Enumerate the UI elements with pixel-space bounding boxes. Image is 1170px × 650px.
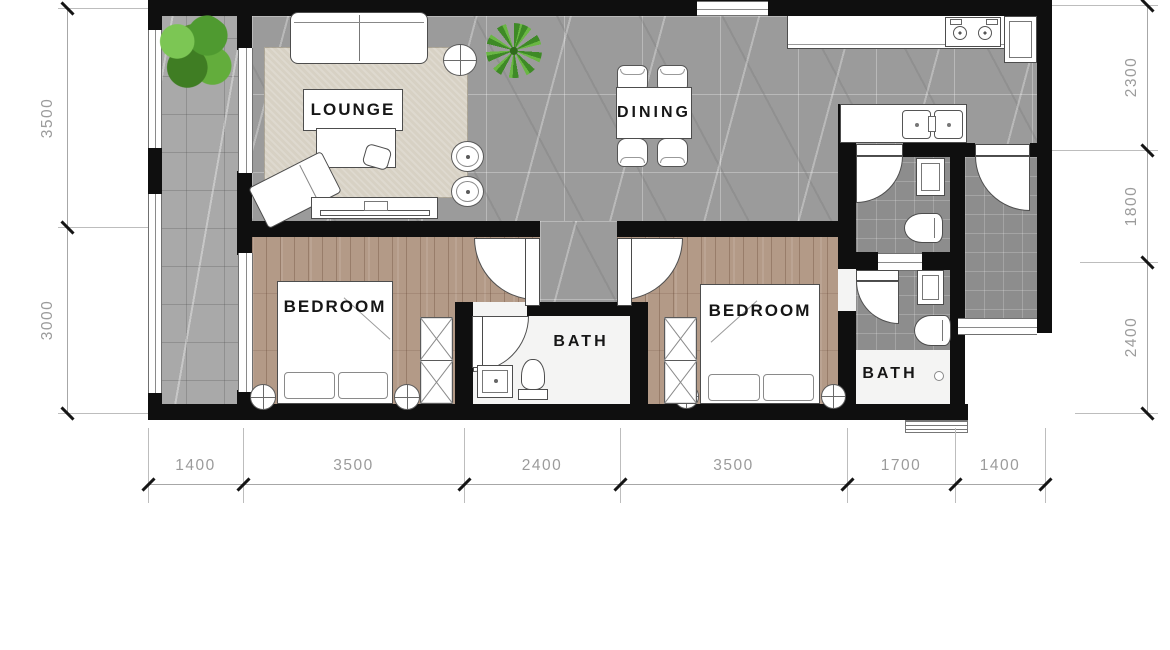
bath-lower-cabinet-inner bbox=[922, 275, 939, 300]
dimension-bottom-4: 3500 bbox=[620, 456, 847, 476]
dimension-right-1: 2300 bbox=[1122, 47, 1142, 107]
sofa-back bbox=[294, 13, 424, 23]
room-label-bedroom2: BEDROOM bbox=[709, 301, 812, 321]
window-bedroom1-balcony bbox=[238, 253, 253, 392]
rug-mat-icon-1a bbox=[250, 384, 276, 410]
dimension-right-3: 2400 bbox=[1122, 307, 1142, 367]
wardrobe-icon-2 bbox=[664, 317, 697, 404]
wall-balcony-a bbox=[237, 0, 252, 50]
door-leaf-bedroom1 bbox=[525, 238, 540, 306]
room-label-bath-right-box: BATH bbox=[858, 363, 922, 385]
door-handle-dot bbox=[934, 371, 944, 381]
fridge-icon bbox=[1004, 16, 1037, 63]
rug-mat-icon-1b bbox=[394, 384, 420, 410]
wall-bedrooms-b bbox=[617, 221, 845, 237]
door-leaf-entry bbox=[975, 144, 1030, 156]
stove-knob-2 bbox=[986, 19, 998, 25]
door-leaf-bath-upper bbox=[856, 144, 903, 156]
toilet-tank-lower bbox=[942, 320, 948, 341]
wall-corridor-top-b bbox=[1030, 143, 1037, 157]
stove-knob-1 bbox=[950, 19, 962, 25]
dimension-bottom-1: 1400 bbox=[148, 456, 243, 476]
dining-chair-3 bbox=[617, 138, 648, 167]
stool-icon-2 bbox=[451, 176, 484, 207]
tv-box bbox=[364, 201, 388, 211]
dimension-line-right bbox=[1147, 5, 1148, 413]
toilet-icon-upper bbox=[904, 213, 943, 243]
ext-l2 bbox=[58, 227, 148, 228]
toilet-icon-middle-tank bbox=[518, 389, 548, 400]
toilet-icon-middle-bowl bbox=[521, 359, 545, 390]
wall-bathcol-top bbox=[903, 143, 950, 157]
door-gap-bath-lower bbox=[838, 269, 856, 311]
chaise-line bbox=[299, 165, 318, 201]
window-balcony-left-lower bbox=[148, 194, 162, 393]
wardrobe-icon-1 bbox=[420, 317, 453, 404]
kitchen-island bbox=[840, 104, 967, 143]
wall-bedrooms-a bbox=[252, 221, 540, 237]
stool-icon-1 bbox=[451, 141, 484, 172]
door-leaf-bedroom2 bbox=[617, 238, 632, 306]
wall-balcony-b bbox=[237, 171, 252, 255]
dimension-bottom-5: 1700 bbox=[847, 456, 955, 476]
toilet-icon-lower bbox=[914, 315, 951, 346]
window-kitchen-top bbox=[697, 1, 768, 16]
dimension-line-left bbox=[67, 8, 68, 413]
dimension-left-1: 3500 bbox=[38, 88, 58, 148]
dimension-bottom-6: 1400 bbox=[955, 456, 1045, 476]
toilet-tank-upper bbox=[934, 218, 940, 238]
dimension-bottom-2: 3500 bbox=[243, 456, 464, 476]
dimension-line-bottom bbox=[148, 484, 1045, 485]
room-label-lounge: LOUNGE bbox=[311, 100, 396, 120]
bed2-pillow-1 bbox=[708, 374, 760, 401]
ext-r2 bbox=[1052, 150, 1158, 151]
wall-corridor-west bbox=[950, 143, 965, 420]
wall-mbath-west bbox=[455, 302, 473, 404]
tv-console-icon bbox=[311, 197, 438, 219]
bath-upper-cabinet bbox=[916, 158, 945, 196]
entry-step bbox=[905, 420, 968, 433]
bed1-pillow-1 bbox=[284, 372, 335, 399]
dining-table-icon: DINING bbox=[616, 87, 692, 139]
room-label-bedroom1: BEDROOM bbox=[284, 297, 387, 317]
wall-mbath-east bbox=[630, 302, 648, 404]
room-label-dining: DINING bbox=[617, 104, 691, 122]
dimension-bottom-3: 2400 bbox=[464, 456, 620, 476]
wall-right-outer bbox=[1037, 0, 1052, 333]
bath-lower-cabinet bbox=[917, 270, 944, 305]
stove-burner-1 bbox=[953, 26, 967, 40]
wall-baths-mid-b bbox=[922, 252, 965, 270]
dimension-right-2: 1800 bbox=[1122, 176, 1142, 236]
sofa-icon bbox=[290, 12, 428, 64]
vanity-faucet-dot bbox=[494, 379, 498, 383]
dimension-left-2: 3000 bbox=[38, 290, 58, 350]
room-label-bath-middle-box: BATH bbox=[549, 331, 613, 353]
wall-baths-mid-a bbox=[838, 252, 878, 270]
room-label-bath-middle: BATH bbox=[553, 333, 608, 351]
bed1-pillow-2 bbox=[338, 372, 388, 399]
wall-left-b bbox=[148, 146, 162, 196]
rug-mat-icon-2b bbox=[821, 384, 846, 409]
door-leaf-bath-lower bbox=[856, 270, 899, 281]
ext-l1 bbox=[58, 8, 148, 9]
ext-l3 bbox=[58, 413, 148, 414]
window-lounge-balcony bbox=[238, 48, 253, 173]
bed2-pillow-2 bbox=[763, 374, 814, 401]
sink-faucet bbox=[928, 116, 936, 132]
room-label-bedroom1-box: BEDROOM bbox=[283, 297, 387, 317]
window-corridor-bottom bbox=[958, 318, 1037, 335]
sink-basin-left bbox=[902, 110, 931, 139]
dining-chair-4 bbox=[657, 138, 688, 167]
bath-upper-cabinet-inner bbox=[921, 163, 940, 191]
sink-basin-right bbox=[934, 110, 963, 139]
door-leaf-bath-middle bbox=[472, 316, 483, 368]
ceiling-fan-icon bbox=[443, 44, 477, 76]
stove-icon bbox=[945, 17, 1001, 47]
lounge-table-main: LOUNGE bbox=[303, 89, 403, 131]
fridge-inner bbox=[1009, 21, 1032, 58]
tree-plant-icon bbox=[152, 12, 236, 96]
stove-burner-2 bbox=[978, 26, 992, 40]
floor-plan: LOUNGE DINING bbox=[0, 0, 1170, 650]
ext-b7 bbox=[1045, 428, 1046, 503]
wall-corridor-top-a bbox=[965, 143, 975, 157]
room-label-bedroom2-box: BEDROOM bbox=[708, 301, 812, 321]
wall-top bbox=[148, 0, 1052, 16]
room-label-bath-right: BATH bbox=[862, 365, 917, 383]
ext-r1 bbox=[1052, 5, 1158, 6]
window-between-baths bbox=[878, 253, 922, 271]
vanity-icon bbox=[477, 365, 513, 398]
